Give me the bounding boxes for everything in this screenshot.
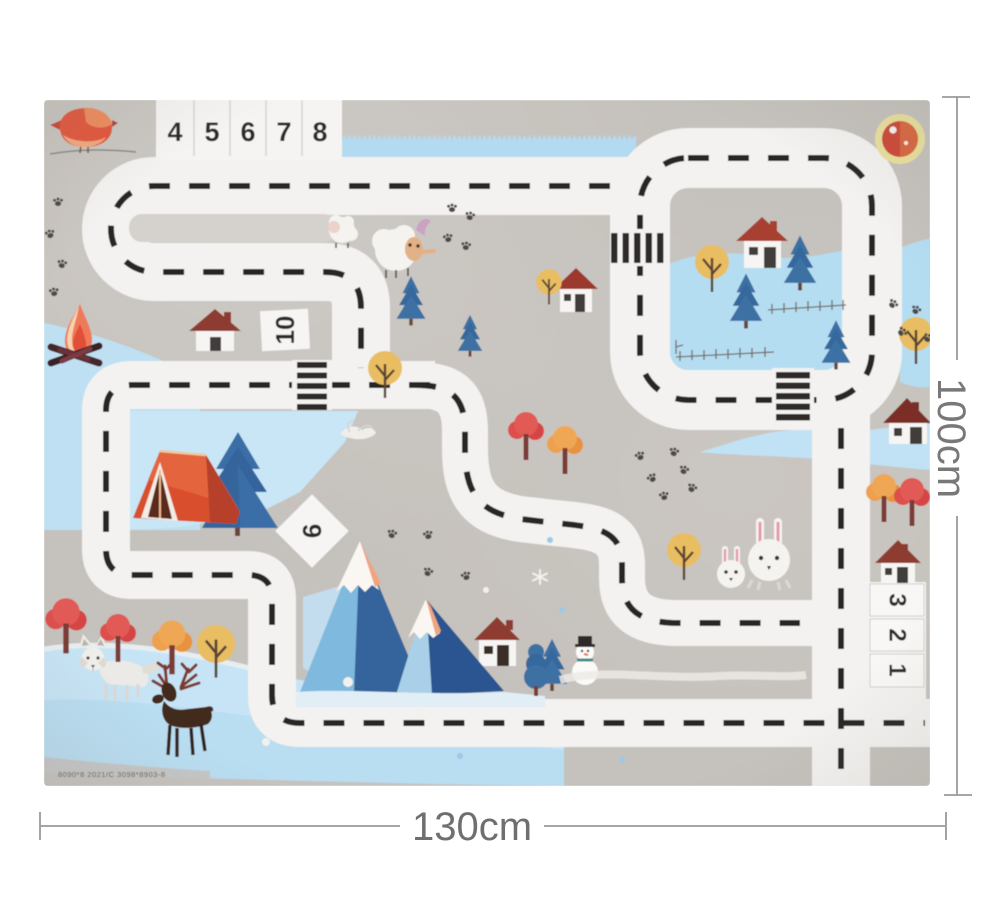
- svg-text:130cm: 130cm: [412, 805, 532, 849]
- svg-text:100cm: 100cm: [929, 378, 973, 498]
